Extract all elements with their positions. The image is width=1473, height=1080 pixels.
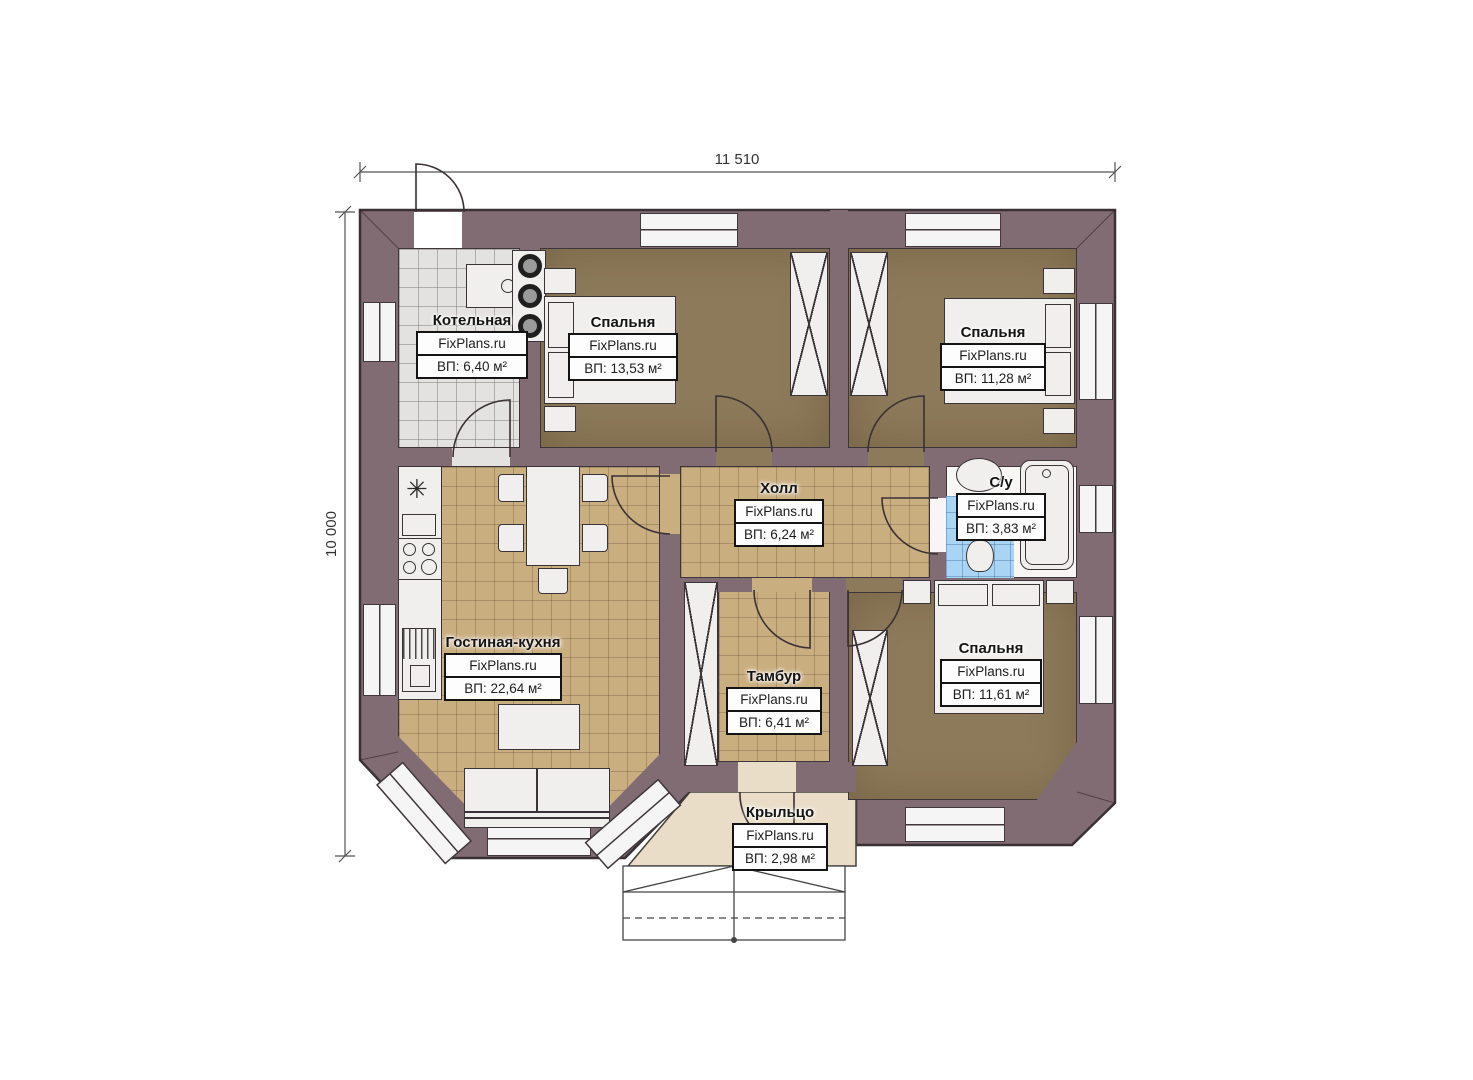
room-label-boiler: Котельная FixPlans.ru ВП: 6,40 м² — [416, 312, 528, 379]
room-area: ВП: 2,98 м² — [734, 846, 826, 869]
window-bedroom1-top — [640, 213, 738, 247]
dining-table — [526, 466, 580, 566]
window-bedroom2-top — [905, 213, 1001, 247]
entry-steps — [623, 866, 845, 943]
wall-bedroom1-bedroom2 — [830, 210, 848, 466]
room-site: FixPlans.ru — [570, 335, 676, 356]
room-info-box: FixPlans.ru ВП: 11,61 м² — [940, 659, 1042, 707]
nightstand — [544, 268, 576, 294]
pillow — [938, 584, 988, 606]
fridge — [402, 628, 436, 692]
wardrobe — [850, 252, 888, 396]
room-title: Тамбур — [726, 668, 822, 685]
room-title: Холл — [734, 480, 824, 497]
dimension-left-label: 10 000 — [323, 511, 340, 557]
wardrobe — [790, 252, 828, 396]
room-label-porch: Крыльцо FixPlans.ru ВП: 2,98 м² — [732, 804, 828, 871]
room-title: Котельная — [416, 312, 528, 329]
room-site: FixPlans.ru — [942, 345, 1044, 366]
room-area: ВП: 6,24 м² — [736, 522, 822, 545]
room-label-bedroom2: Спальня FixPlans.ru ВП: 11,28 м² — [940, 324, 1046, 391]
room-site: FixPlans.ru — [728, 689, 820, 710]
wardrobe — [684, 582, 718, 766]
toilet — [966, 540, 994, 572]
room-info-box: FixPlans.ru ВП: 13,53 м² — [568, 333, 678, 381]
room-area: ВП: 11,28 м² — [942, 366, 1044, 389]
nightstand — [1046, 580, 1074, 604]
room-label-vestibule: Тамбур FixPlans.ru ВП: 6,41 м² — [726, 668, 822, 735]
chair — [582, 474, 608, 502]
window-boiler-left — [363, 302, 396, 362]
room-area: ВП: 6,41 м² — [728, 710, 820, 733]
chair — [582, 524, 608, 552]
doorway-boiler — [452, 448, 510, 466]
pillow — [1045, 304, 1071, 348]
dimension-top-label: 11 510 — [715, 151, 760, 168]
room-label-bedroom3: Спальня FixPlans.ru ВП: 11,61 м² — [940, 640, 1042, 707]
room-info-box: FixPlans.ru ВП: 6,24 м² — [734, 499, 824, 547]
room-site: FixPlans.ru — [958, 495, 1044, 516]
boiler-tank-icon — [518, 254, 542, 278]
room-title: Крыльцо — [732, 804, 828, 821]
doorway-boiler-exterior — [414, 212, 462, 248]
coffee-table — [498, 704, 580, 750]
room-title: С/у — [956, 474, 1046, 491]
window-bedroom2-right — [1079, 303, 1113, 400]
room-label-hall: Холл FixPlans.ru ВП: 6,24 м² — [734, 480, 824, 547]
doorway-vestibule — [752, 578, 812, 592]
nightstand — [903, 580, 931, 604]
doorway-kitchen — [660, 474, 680, 534]
room-title: Спальня — [940, 640, 1042, 657]
chair — [498, 524, 524, 552]
room-info-box: FixPlans.ru ВП: 2,98 м² — [732, 823, 828, 871]
room-label-bathroom: С/у FixPlans.ru ВП: 3,83 м² — [956, 474, 1046, 541]
room-info-box: FixPlans.ru ВП: 6,41 м² — [726, 687, 822, 735]
kitchen-sink — [402, 514, 436, 536]
nightstand — [1043, 268, 1075, 294]
doorway-bedroom1 — [716, 448, 772, 466]
window-bedroom3-bottom — [905, 807, 1005, 842]
doorway-bedroom3 — [846, 578, 902, 592]
boiler-tank-icon — [518, 284, 542, 308]
room-area: ВП: 13,53 м² — [570, 356, 676, 379]
floor-plan-page: 11 510 10 000 — [0, 0, 1473, 1080]
pillow — [1045, 352, 1071, 396]
room-title: Спальня — [568, 314, 678, 331]
room-area: ВП: 6,40 м² — [418, 354, 526, 377]
room-info-box: FixPlans.ru ВП: 6,40 м² — [416, 331, 528, 379]
room-title: Спальня — [940, 324, 1046, 341]
cooker-hood-icon: ✳ — [406, 476, 428, 502]
room-info-box: FixPlans.ru ВП: 3,83 м² — [956, 493, 1046, 541]
doorway-bathroom — [930, 498, 946, 552]
room-label-bedroom1: Спальня FixPlans.ru ВП: 13,53 м² — [568, 314, 678, 381]
room-site: FixPlans.ru — [942, 661, 1040, 682]
chair — [498, 474, 524, 502]
room-area: ВП: 22,64 м² — [446, 676, 560, 699]
window-kitchen-left — [363, 604, 396, 696]
room-site: FixPlans.ru — [446, 655, 560, 676]
room-title: Гостиная-кухня — [444, 634, 562, 651]
pillow — [992, 584, 1040, 606]
doorway-entrance — [738, 762, 796, 792]
window-bedroom3-right — [1079, 616, 1113, 704]
chair — [538, 568, 568, 594]
nightstand — [1043, 408, 1075, 434]
room-site: FixPlans.ru — [736, 501, 822, 522]
sofa — [464, 768, 610, 828]
window-bathroom-right — [1079, 485, 1113, 533]
room-info-box: FixPlans.ru ВП: 11,28 м² — [940, 343, 1046, 391]
doorway-bedroom2 — [868, 448, 924, 466]
nightstand — [544, 406, 576, 432]
stove — [398, 538, 442, 580]
wardrobe — [852, 630, 888, 766]
room-site: FixPlans.ru — [418, 333, 526, 354]
room-site: FixPlans.ru — [734, 825, 826, 846]
room-label-living-kitchen: Гостиная-кухня FixPlans.ru ВП: 22,64 м² — [444, 634, 562, 701]
room-info-box: FixPlans.ru ВП: 22,64 м² — [444, 653, 562, 701]
room-area: ВП: 11,61 м² — [942, 682, 1040, 705]
room-area: ВП: 3,83 м² — [958, 516, 1044, 539]
